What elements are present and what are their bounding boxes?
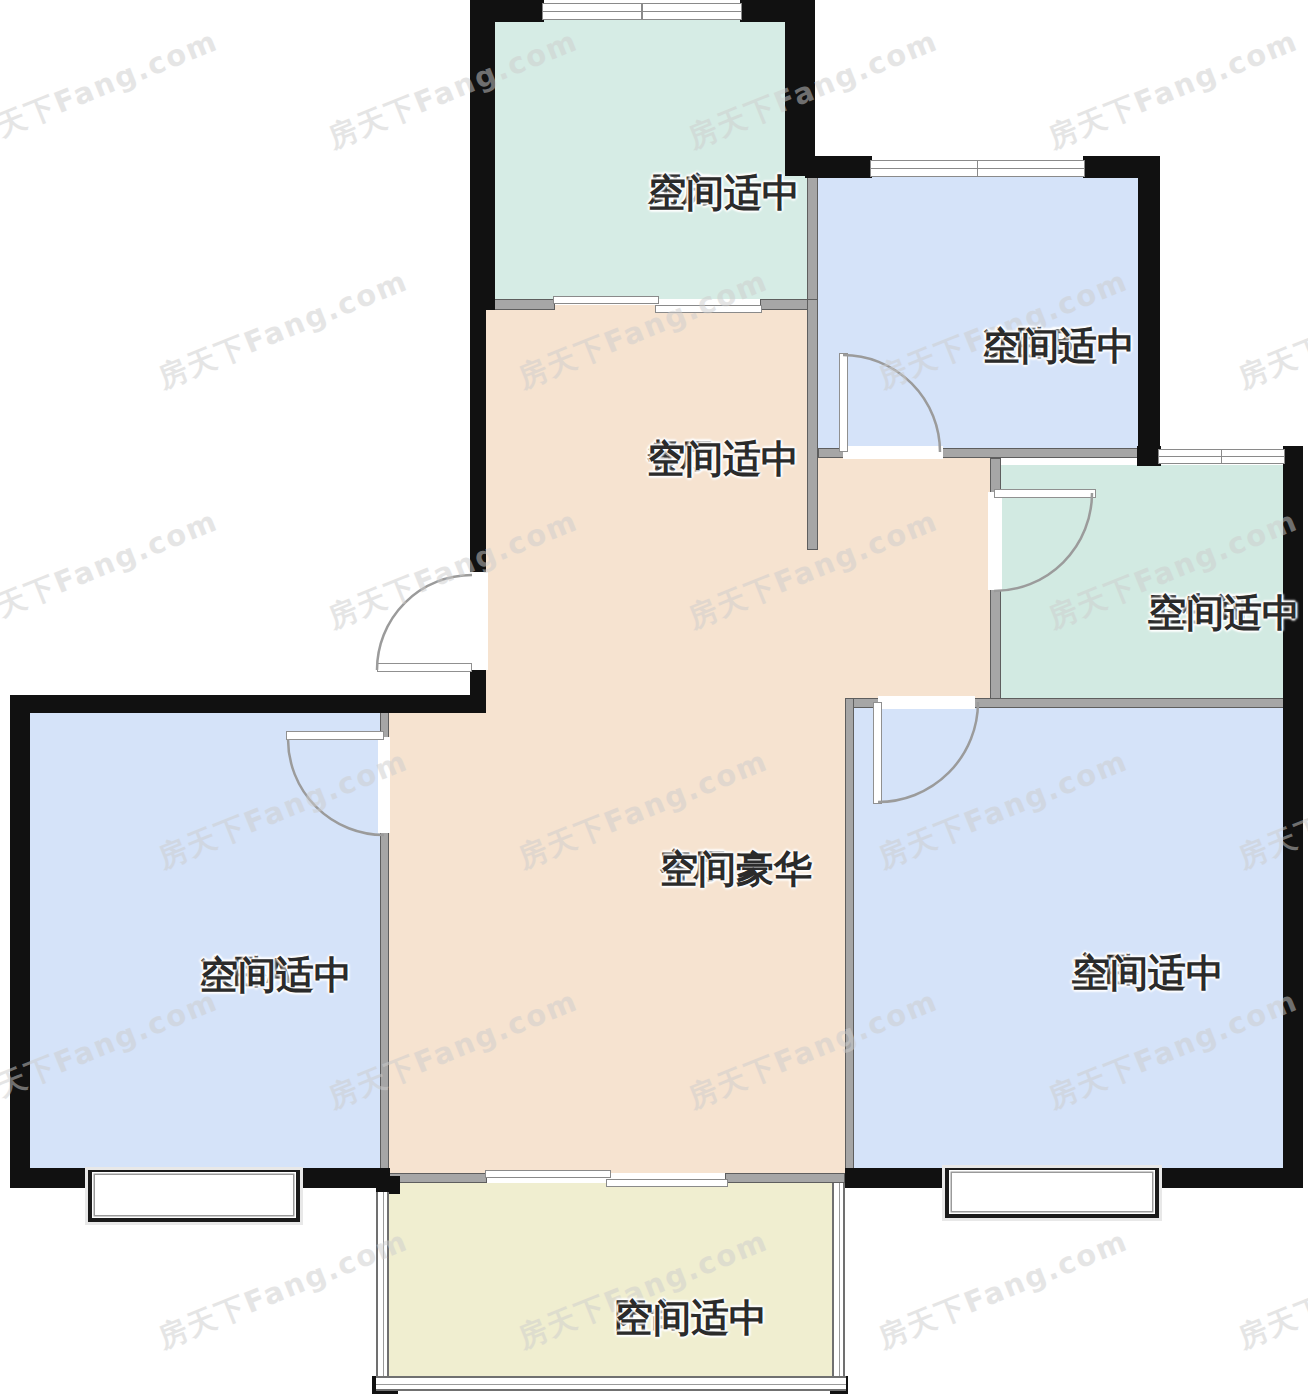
sliding-door-panel [655,305,762,313]
watermark: 房天下Fang.com [152,1222,414,1359]
interior-wall [973,698,1285,708]
door-leaf [994,489,1096,498]
room-desc: 空间适中 [983,323,1135,369]
exterior-wall [470,0,495,310]
door-leaf [873,702,882,804]
room-living [388,710,845,1173]
room-desc: 空间适中 [615,1295,767,1341]
door-opening [878,696,975,709]
sliding-door-panel [606,1179,728,1187]
room-desc: 空间适中 [1148,590,1300,636]
interior-wall [380,831,389,1175]
balcony-railing [376,1192,389,1378]
watermark: 房天下Fang.com [0,22,224,159]
bay-window [88,1170,300,1222]
interior-wall [990,588,1001,700]
watermark: 房天下Fang.com [1042,22,1304,159]
exterior-wall [1156,1168,1303,1188]
exterior-wall [470,0,544,22]
door-leaf [377,663,472,672]
room-master [853,708,1283,1168]
balcony-railing [376,1376,846,1391]
exterior-wall [785,0,815,176]
room-desc: 空间适中 [648,170,800,216]
exterior-wall [845,1168,947,1188]
room-desc: 空间适中 [200,952,352,998]
exterior-wall [1138,156,1160,466]
watermark: 房天下Fang.com [0,502,224,639]
exterior-wall [470,305,486,574]
room-dining [486,305,807,710]
window [1158,449,1285,464]
door-leaf [286,731,384,740]
room-balcony [388,1183,833,1376]
exterior-wall [10,695,30,1188]
door-opening [988,492,1002,590]
sliding-door-panel [553,296,659,304]
exterior-wall [10,695,483,713]
room-desc: 空间适中 [647,436,799,482]
room-desc: 空间适中 [1072,950,1224,996]
room-kitchen [495,20,807,299]
exterior-wall [1283,446,1303,1188]
door-opening [843,446,943,459]
balcony-railing [832,1183,845,1378]
exterior-wall [470,668,486,713]
floor-plan: 房天下Fang.com房天下Fang.com房天下Fang.com房天下Fang… [0,0,1308,1400]
door-arc [377,575,472,670]
exterior-wall [10,1168,90,1188]
room-bedroom-a [30,713,380,1168]
door-leaf [839,353,848,452]
interior-wall [807,176,818,300]
interior-wall [807,299,818,550]
room-desc: 空间豪华 [660,846,812,892]
window [542,3,742,20]
watermark: 房天下Fang.com [1232,1222,1308,1359]
door-opening [378,737,390,833]
bay-window [945,1168,1159,1218]
interior-wall [941,448,1141,458]
room-bathroom [1000,465,1283,698]
room-hallway [807,458,990,710]
window [870,160,1085,177]
interior-wall [725,1173,845,1183]
watermark: 房天下Fang.com [1232,262,1308,399]
sliding-door-panel [485,1170,611,1178]
interior-wall [388,1173,487,1183]
exterior-wall [805,156,872,178]
watermark: 房天下Fang.com [872,1222,1134,1359]
watermark: 房天下Fang.com [152,262,414,399]
door-opening [467,572,488,670]
interior-wall [845,698,854,1175]
room-bedroom-b [818,176,1138,448]
